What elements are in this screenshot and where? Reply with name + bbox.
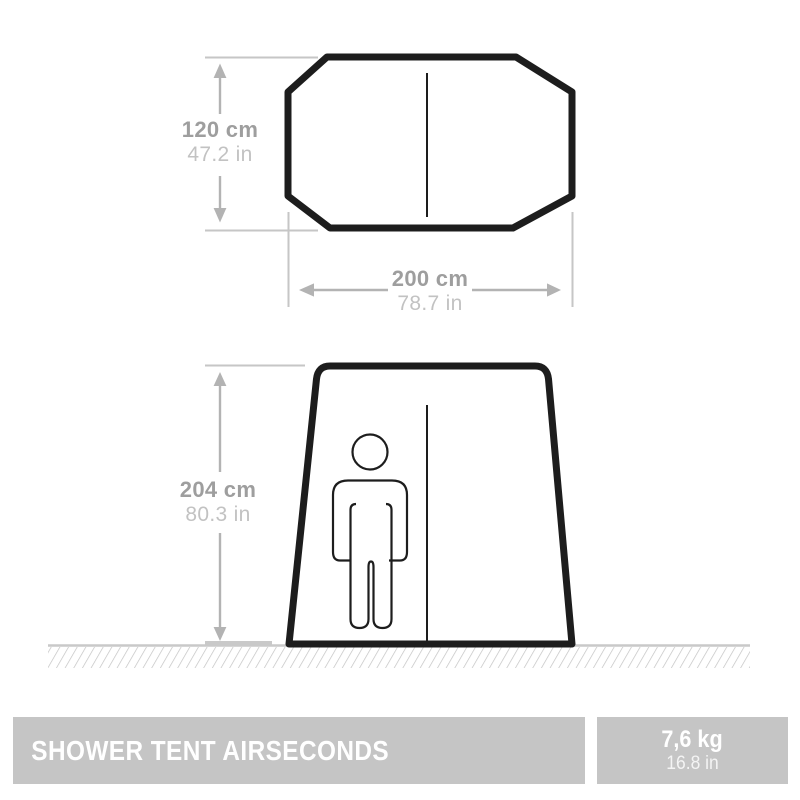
width-metric-value: 200 cm bbox=[370, 266, 490, 291]
weight-badge: 7,6 kg 16.8 in bbox=[597, 717, 788, 784]
tent-front-view-icon bbox=[289, 366, 572, 644]
weight-primary-value: 7,6 kg bbox=[662, 727, 723, 753]
product-title-bar: SHOWER TENT AIRSECONDS bbox=[13, 717, 585, 784]
product-name: SHOWER TENT AIRSECONDS bbox=[13, 735, 389, 767]
height-dimension-label: 204 cm 80.3 in bbox=[158, 477, 278, 527]
depth-metric-value: 120 cm bbox=[160, 117, 280, 142]
weight-secondary-value: 16.8 in bbox=[666, 753, 718, 775]
depth-dimension-label: 120 cm 47.2 in bbox=[160, 117, 280, 167]
width-dimension-label: 200 cm 78.7 in bbox=[370, 266, 490, 316]
height-imperial-value: 80.3 in bbox=[158, 502, 278, 527]
product-dimension-diagram: 120 cm 47.2 in 200 cm 78.7 in 204 cm 80.… bbox=[0, 0, 800, 800]
diagram-linework bbox=[0, 0, 800, 800]
height-metric-value: 204 cm bbox=[158, 477, 278, 502]
ground-icon bbox=[48, 646, 750, 669]
width-imperial-value: 78.7 in bbox=[370, 291, 490, 316]
depth-imperial-value: 47.2 in bbox=[160, 142, 280, 167]
tent-top-view-icon bbox=[288, 57, 572, 228]
